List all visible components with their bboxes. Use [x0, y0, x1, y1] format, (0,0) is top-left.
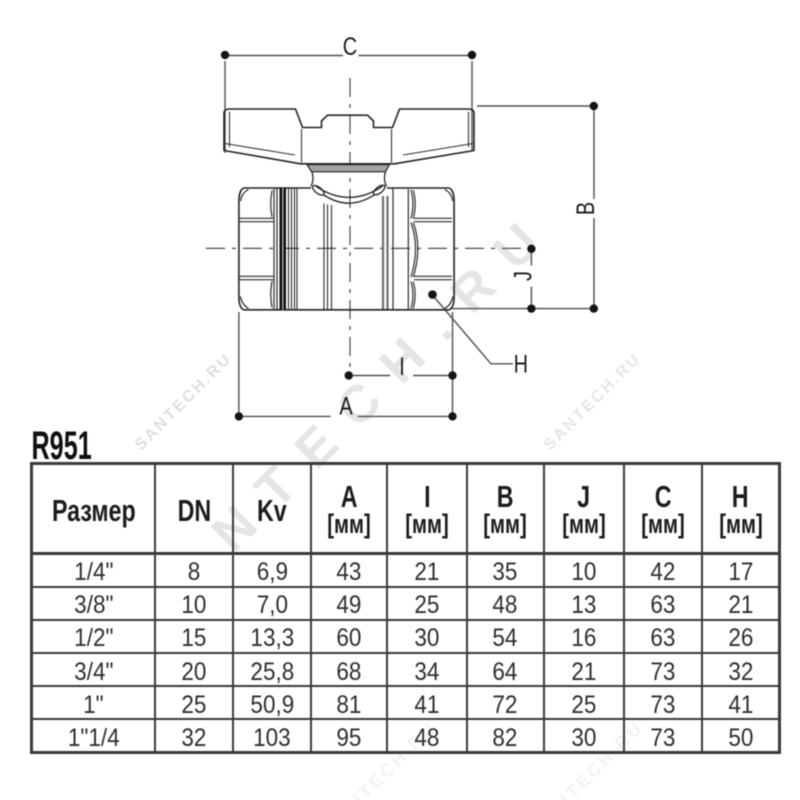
svg-text:H: H — [514, 350, 528, 378]
svg-text:SANTECH.RU: SANTECH.RU — [541, 350, 645, 454]
svg-text:SANTECH.RU: SANTECH.RU — [132, 350, 236, 454]
svg-text:A: A — [339, 393, 353, 421]
svg-text:I: I — [399, 353, 405, 381]
svg-text:C: C — [343, 33, 357, 61]
svg-text:J: J — [510, 271, 538, 281]
svg-text:B: B — [572, 202, 600, 215]
